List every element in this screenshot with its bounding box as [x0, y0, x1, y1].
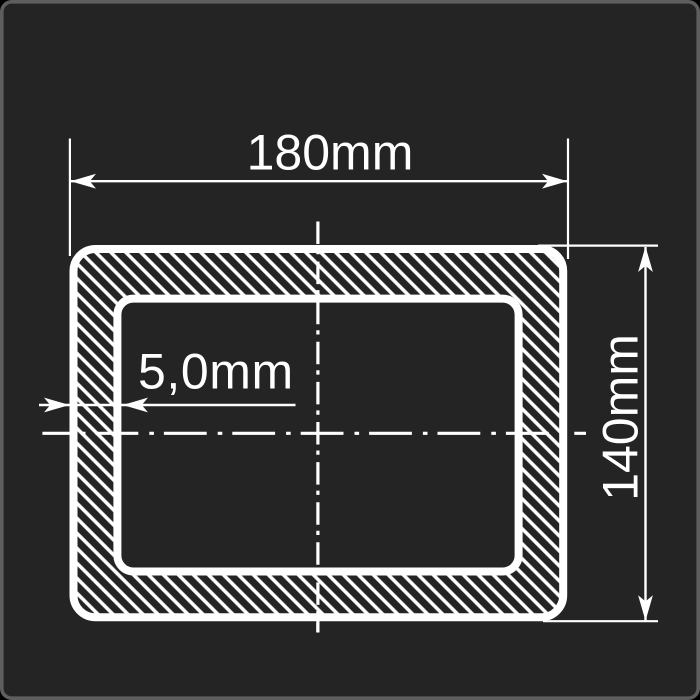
svg-text:180mm: 180mm	[247, 125, 414, 181]
svg-text:140mm: 140mm	[593, 334, 649, 501]
svg-text:5,0mm: 5,0mm	[138, 344, 294, 400]
